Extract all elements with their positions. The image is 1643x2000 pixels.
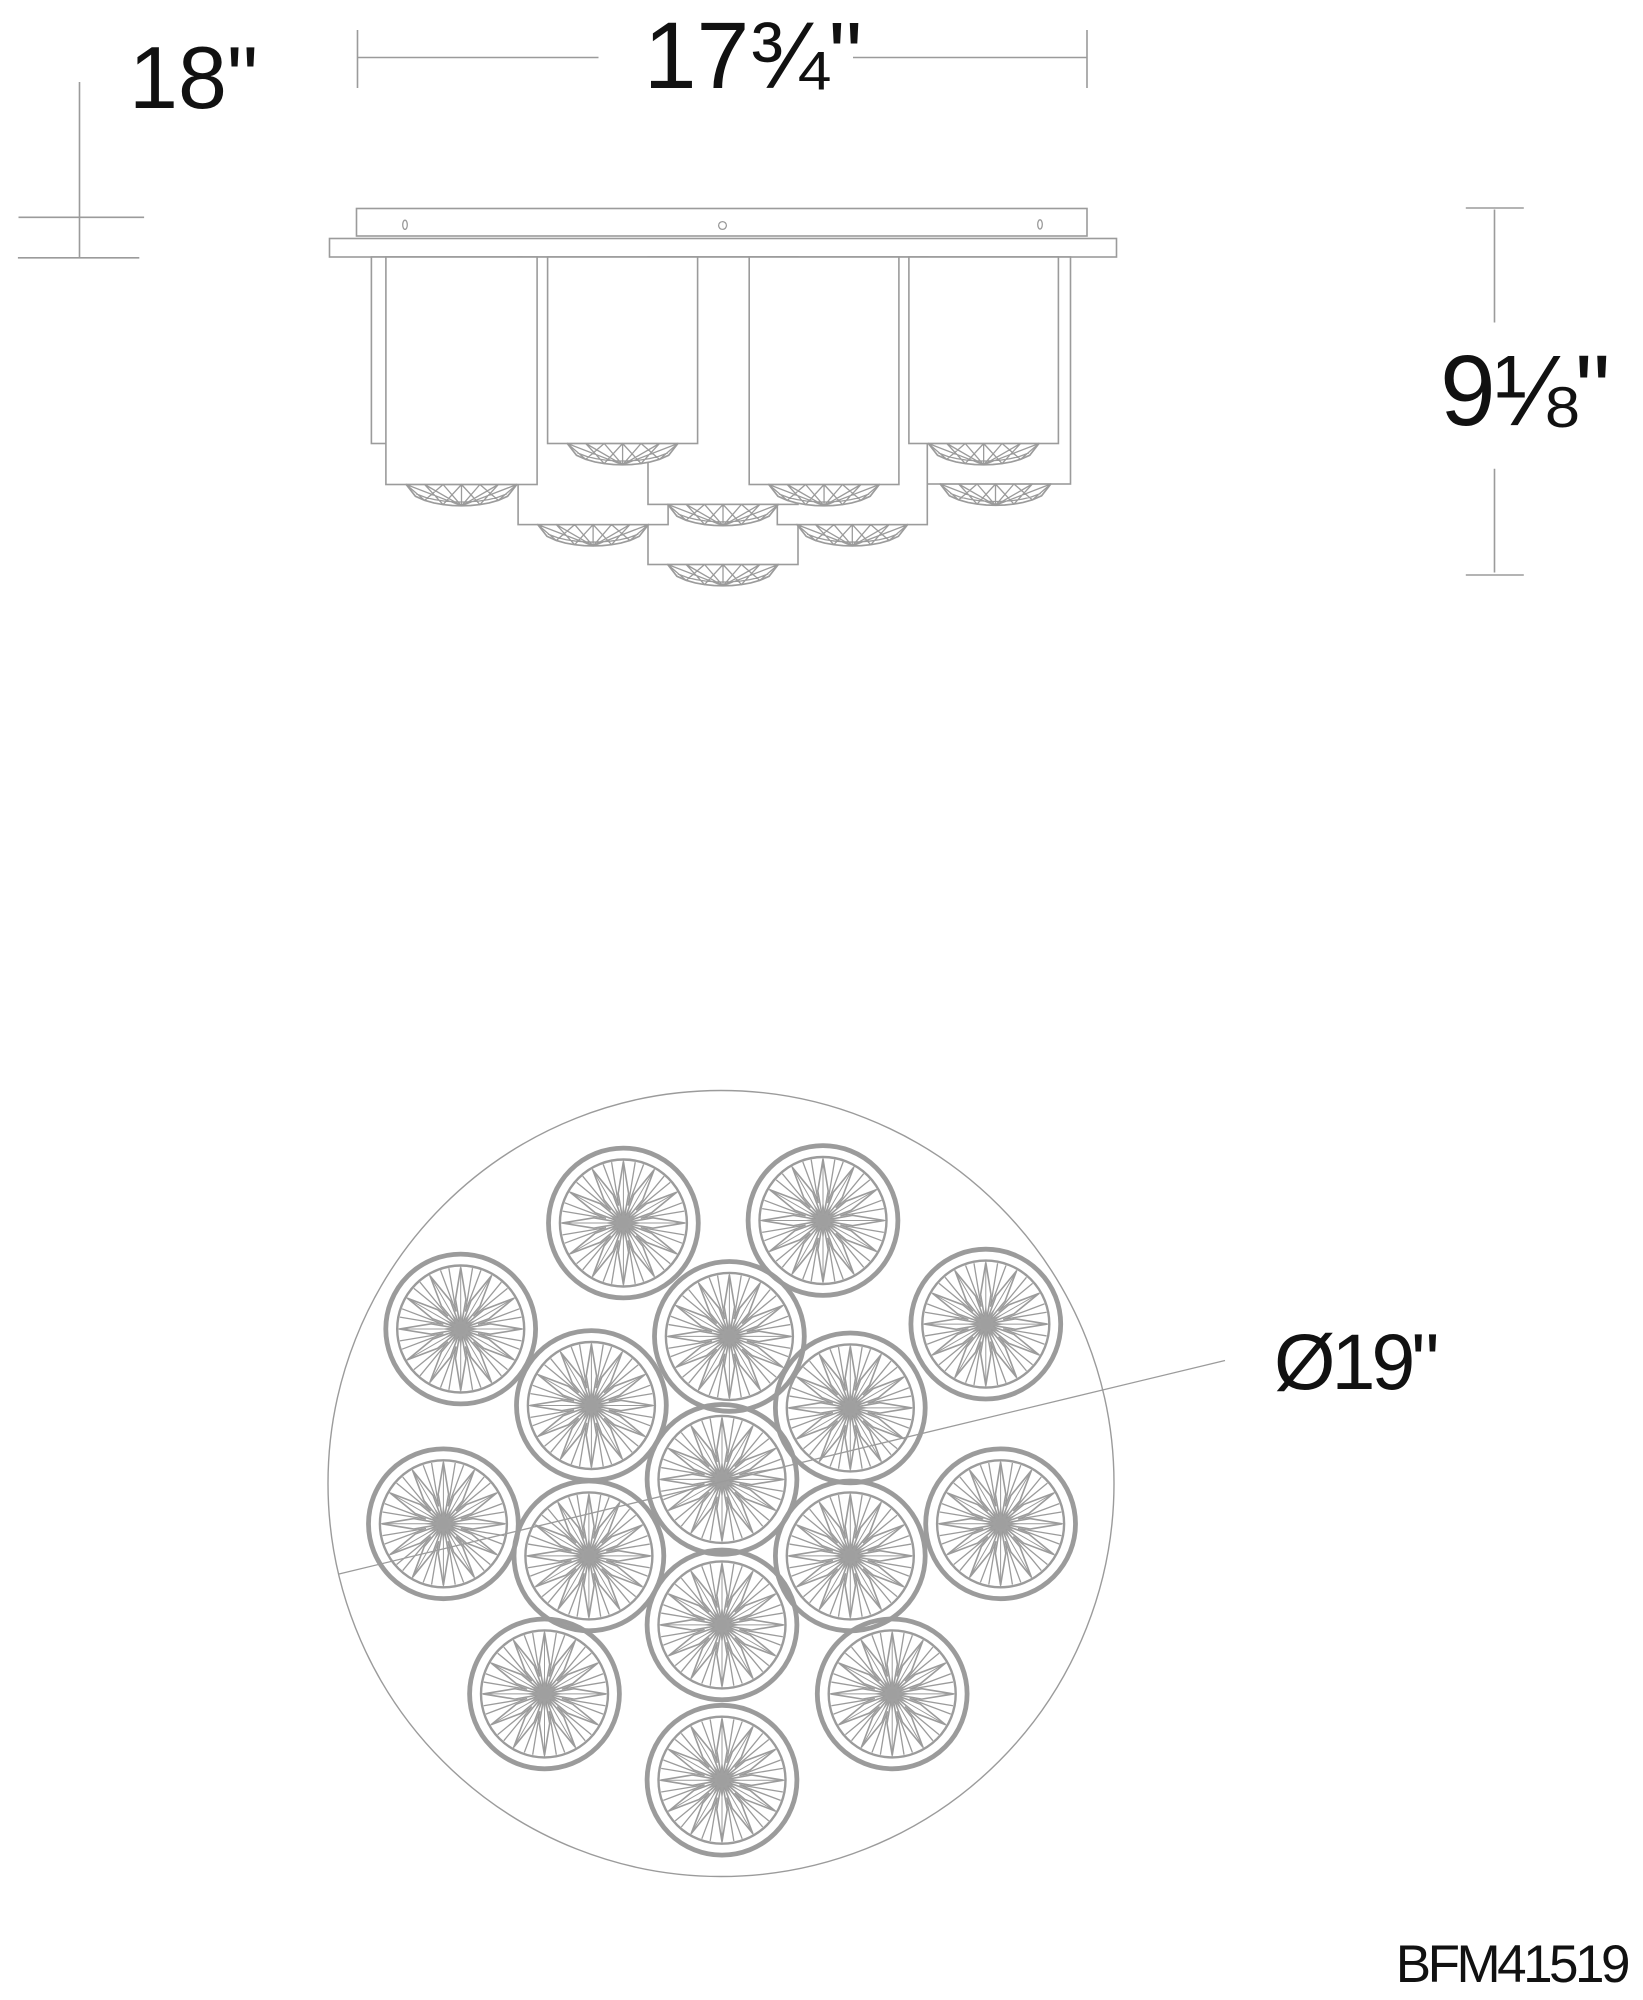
svg-text:18": 18": [129, 28, 258, 127]
svg-text:Ø19": Ø19": [1274, 1317, 1436, 1406]
svg-text:9⅛": 9⅛": [1440, 335, 1609, 447]
svg-text:17¾": 17¾": [644, 3, 863, 109]
svg-text:BFM41519: BFM41519: [1396, 1935, 1628, 1994]
